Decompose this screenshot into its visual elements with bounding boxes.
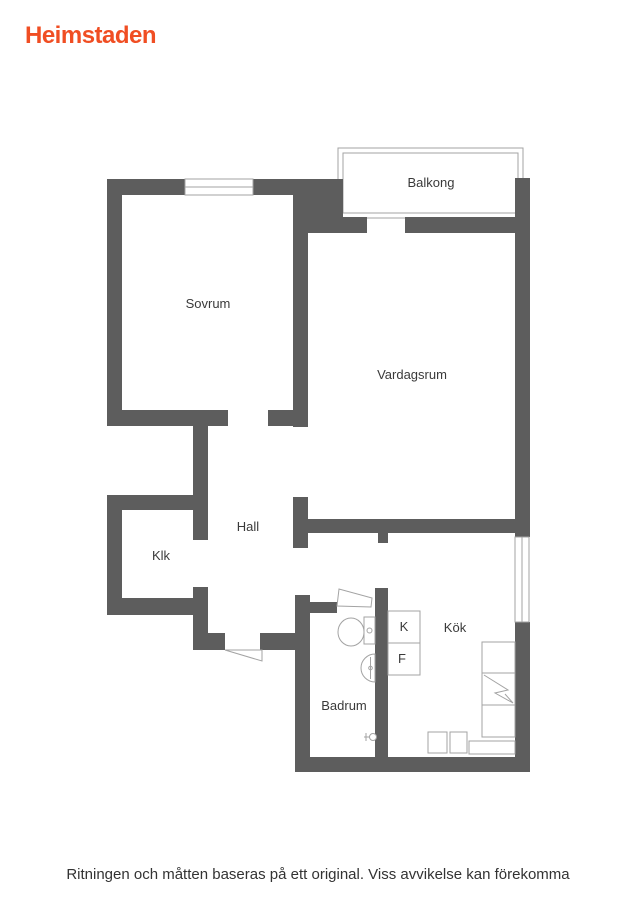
- bathroom-fixtures: [338, 617, 377, 741]
- stove-square: [428, 732, 447, 753]
- appliance-label-fridge: K: [400, 619, 409, 634]
- walls: [107, 178, 530, 772]
- wall: [107, 410, 228, 426]
- wall: [268, 410, 293, 426]
- room-label-vardagsrum: Vardagsrum: [377, 367, 447, 382]
- room-label-klk: Klk: [152, 548, 171, 563]
- wall: [107, 495, 122, 615]
- toilet-tank: [364, 617, 375, 644]
- wall: [515, 622, 530, 772]
- wall: [375, 588, 388, 757]
- wall: [515, 178, 530, 537]
- toilet-bowl-icon: [338, 618, 364, 646]
- bathroom-door-swing: [337, 589, 372, 607]
- wall: [293, 179, 308, 427]
- stove-square: [450, 732, 467, 753]
- wall: [378, 533, 388, 543]
- windows: [185, 179, 529, 622]
- wall: [308, 602, 337, 613]
- room-label-hall: Hall: [237, 519, 260, 534]
- wall: [293, 497, 308, 548]
- wall: [295, 217, 367, 233]
- wall: [295, 595, 310, 757]
- sink-icon: [361, 654, 375, 682]
- wall: [193, 587, 208, 650]
- kitchen-counter: [482, 642, 515, 737]
- room-label-balkong: Balkong: [408, 175, 455, 190]
- wall: [107, 179, 122, 426]
- room-label-badrum: Badrum: [321, 698, 367, 713]
- wall: [193, 410, 208, 540]
- wall: [295, 757, 530, 772]
- room-label-kok: Kök: [444, 620, 467, 635]
- tap-icon: [370, 734, 377, 741]
- wall: [107, 598, 208, 615]
- wall: [308, 519, 516, 533]
- wall: [260, 633, 295, 650]
- room-label-sovrum: Sovrum: [186, 296, 231, 311]
- entry-door-swing: [225, 650, 262, 661]
- wall: [107, 495, 208, 510]
- wall: [405, 217, 518, 233]
- floor-plan: Balkong Sovrum Vardagsrum Hall Klk Badru…: [0, 0, 636, 900]
- appliance-label-freezer: F: [398, 651, 406, 666]
- kitchen-bench: [469, 741, 515, 754]
- disclaimer-text: Ritningen och måtten baseras på ett orig…: [0, 866, 636, 883]
